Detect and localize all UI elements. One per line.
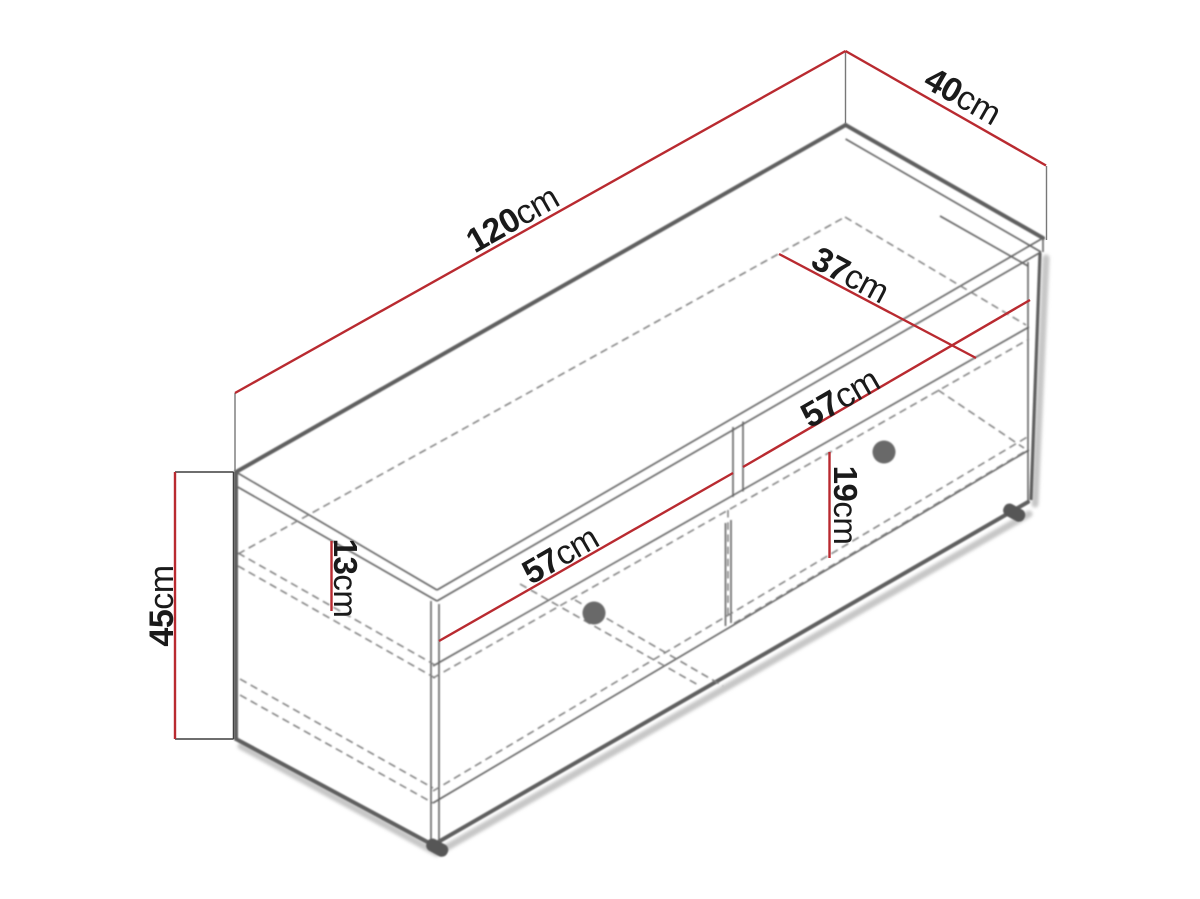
svg-text:13cm: 13cm bbox=[327, 539, 364, 618]
svg-text:120cm: 120cm bbox=[460, 178, 565, 260]
svg-text:19cm: 19cm bbox=[827, 466, 864, 545]
svg-text:45cm: 45cm bbox=[143, 565, 181, 646]
svg-text:40cm: 40cm bbox=[918, 60, 1007, 133]
svg-text:57cm: 57cm bbox=[794, 360, 886, 436]
svg-text:37cm: 37cm bbox=[805, 239, 894, 311]
